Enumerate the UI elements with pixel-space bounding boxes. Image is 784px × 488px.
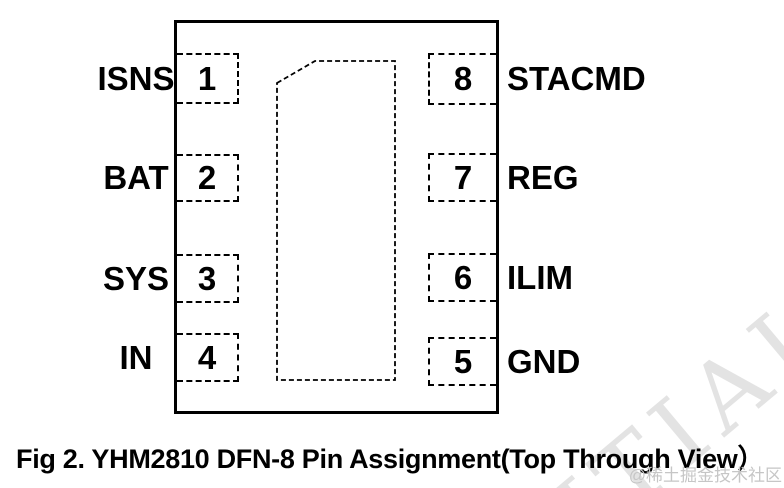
pin-number-6: 6	[454, 259, 472, 297]
datasheet-figure: NTIAL 1 2 3 4 8 7 6 5 ISNS BAT	[0, 0, 784, 488]
pin-name-isns: ISNS	[56, 53, 216, 104]
pin-name-sys: SYS	[56, 254, 216, 303]
pin-box-8: 8	[428, 53, 496, 105]
pin-name-gnd: GND	[507, 337, 697, 386]
pin-name-bat: BAT	[56, 154, 216, 202]
community-watermark: @稀土掘金技术社区	[629, 461, 782, 486]
pin-number-8: 8	[454, 60, 472, 98]
pin-box-6: 6	[428, 253, 496, 302]
pin-number-5: 5	[454, 343, 472, 381]
pin-box-7: 7	[428, 153, 496, 202]
pin-name-reg: REG	[507, 153, 697, 202]
pin-name-ilim: ILIM	[507, 253, 697, 302]
diagram-layer: 1 2 3 4 8 7 6 5 ISNS BAT SYS IN STACMD R…	[0, 0, 784, 488]
pin-name-stacmd: STACMD	[507, 53, 697, 105]
pin-number-7: 7	[454, 159, 472, 197]
pin-name-in: IN	[56, 333, 216, 382]
pin-box-5: 5	[428, 337, 496, 386]
